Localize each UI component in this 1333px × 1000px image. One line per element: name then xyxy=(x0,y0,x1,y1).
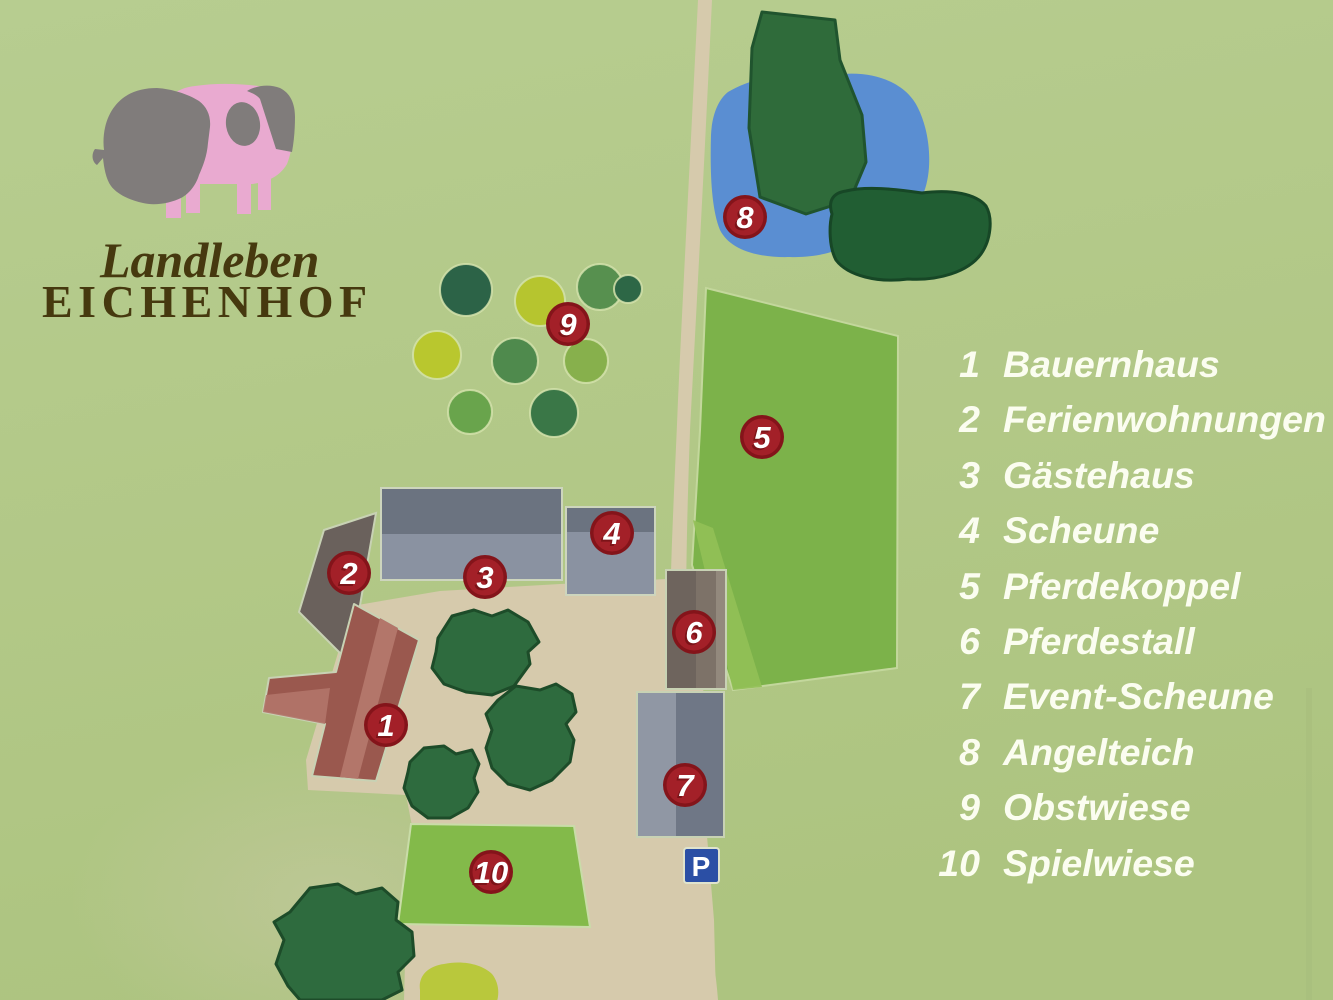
svg-text:3: 3 xyxy=(959,454,980,496)
svg-text:7: 7 xyxy=(676,768,695,803)
svg-text:10: 10 xyxy=(474,855,508,890)
svg-text:P: P xyxy=(692,851,711,882)
svg-text:Gästehaus: Gästehaus xyxy=(1003,454,1195,496)
svg-text:9: 9 xyxy=(559,307,577,342)
svg-text:Scheune: Scheune xyxy=(1003,509,1159,551)
svg-text:3: 3 xyxy=(476,560,493,595)
svg-text:6: 6 xyxy=(959,620,981,662)
svg-text:EICHENHOF: EICHENHOF xyxy=(42,276,373,327)
svg-text:7: 7 xyxy=(959,675,982,717)
svg-text:10: 10 xyxy=(938,842,980,884)
svg-text:Ferienwohnungen: Ferienwohnungen xyxy=(1003,398,1326,440)
svg-text:1: 1 xyxy=(377,708,394,743)
svg-text:Spielwiese: Spielwiese xyxy=(1003,842,1195,884)
svg-text:Bauernhaus: Bauernhaus xyxy=(1003,343,1220,385)
svg-text:2: 2 xyxy=(339,556,357,591)
svg-text:1: 1 xyxy=(959,343,980,385)
svg-text:5: 5 xyxy=(959,565,981,607)
svg-text:Event-Scheune: Event-Scheune xyxy=(1003,675,1274,717)
svg-text:8: 8 xyxy=(959,731,980,773)
svg-text:6: 6 xyxy=(685,615,703,650)
svg-text:4: 4 xyxy=(602,516,620,551)
svg-text:Angelteich: Angelteich xyxy=(1002,731,1195,773)
svg-text:Obstwiese: Obstwiese xyxy=(1003,786,1191,828)
svg-text:5: 5 xyxy=(753,420,771,455)
svg-text:Pferdestall: Pferdestall xyxy=(1003,620,1196,662)
svg-text:4: 4 xyxy=(958,509,980,551)
svg-text:2: 2 xyxy=(958,398,980,440)
svg-text:9: 9 xyxy=(959,786,980,828)
svg-text:8: 8 xyxy=(736,200,754,235)
svg-text:Pferdekoppel: Pferdekoppel xyxy=(1003,565,1242,607)
